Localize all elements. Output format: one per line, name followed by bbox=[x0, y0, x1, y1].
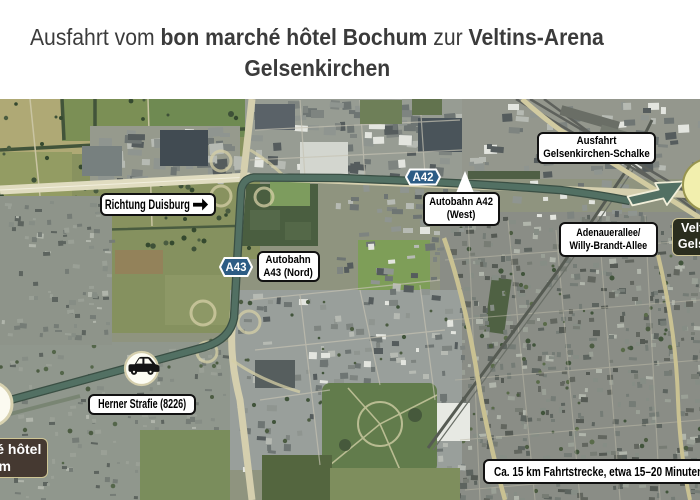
svg-text:A43: A43 bbox=[225, 262, 246, 274]
svg-text:A42: A42 bbox=[412, 172, 433, 184]
